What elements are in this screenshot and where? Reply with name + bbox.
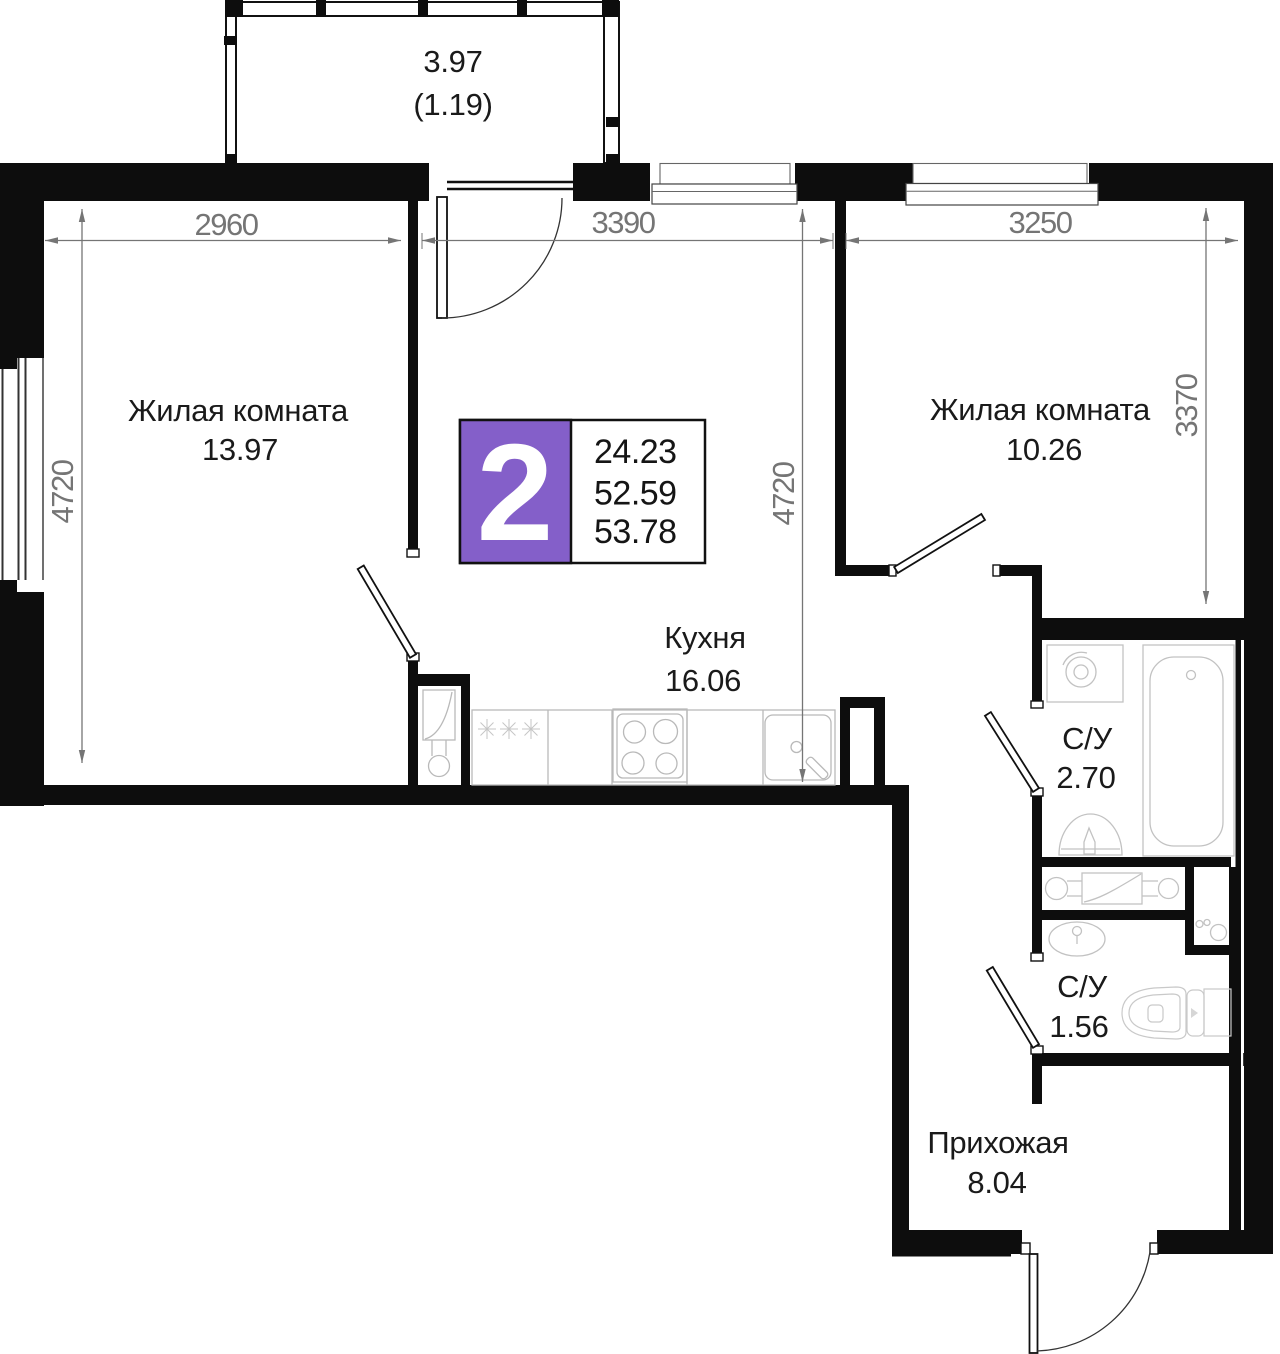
svg-text:4720: 4720 bbox=[45, 459, 80, 523]
svg-text:(1.19): (1.19) bbox=[413, 87, 492, 122]
svg-text:2: 2 bbox=[477, 416, 554, 570]
svg-text:3.97: 3.97 bbox=[423, 44, 482, 79]
svg-text:С/У: С/У bbox=[1062, 721, 1112, 756]
svg-text:13.97: 13.97 bbox=[202, 432, 278, 467]
svg-text:8.04: 8.04 bbox=[967, 1165, 1026, 1200]
svg-text:24.23: 24.23 bbox=[594, 433, 677, 471]
svg-text:Жилая комната: Жилая комната bbox=[128, 393, 349, 428]
svg-text:10.26: 10.26 bbox=[1006, 432, 1082, 467]
svg-text:2960: 2960 bbox=[195, 207, 259, 242]
svg-text:Кухня: Кухня bbox=[664, 620, 745, 655]
svg-text:52.59: 52.59 bbox=[594, 475, 677, 513]
svg-text:Прихожая: Прихожая bbox=[927, 1125, 1068, 1160]
svg-text:1.56: 1.56 bbox=[1049, 1009, 1108, 1044]
svg-text:Жилая комната: Жилая комната bbox=[930, 392, 1151, 427]
svg-text:3250: 3250 bbox=[1009, 205, 1073, 240]
svg-text:53.78: 53.78 bbox=[594, 513, 677, 551]
svg-text:3390: 3390 bbox=[592, 205, 656, 240]
svg-text:С/У: С/У bbox=[1057, 969, 1107, 1004]
svg-text:3370: 3370 bbox=[1169, 373, 1204, 437]
svg-text:16.06: 16.06 bbox=[665, 663, 741, 698]
svg-text:2.70: 2.70 bbox=[1056, 760, 1115, 795]
svg-text:4720: 4720 bbox=[766, 461, 801, 525]
